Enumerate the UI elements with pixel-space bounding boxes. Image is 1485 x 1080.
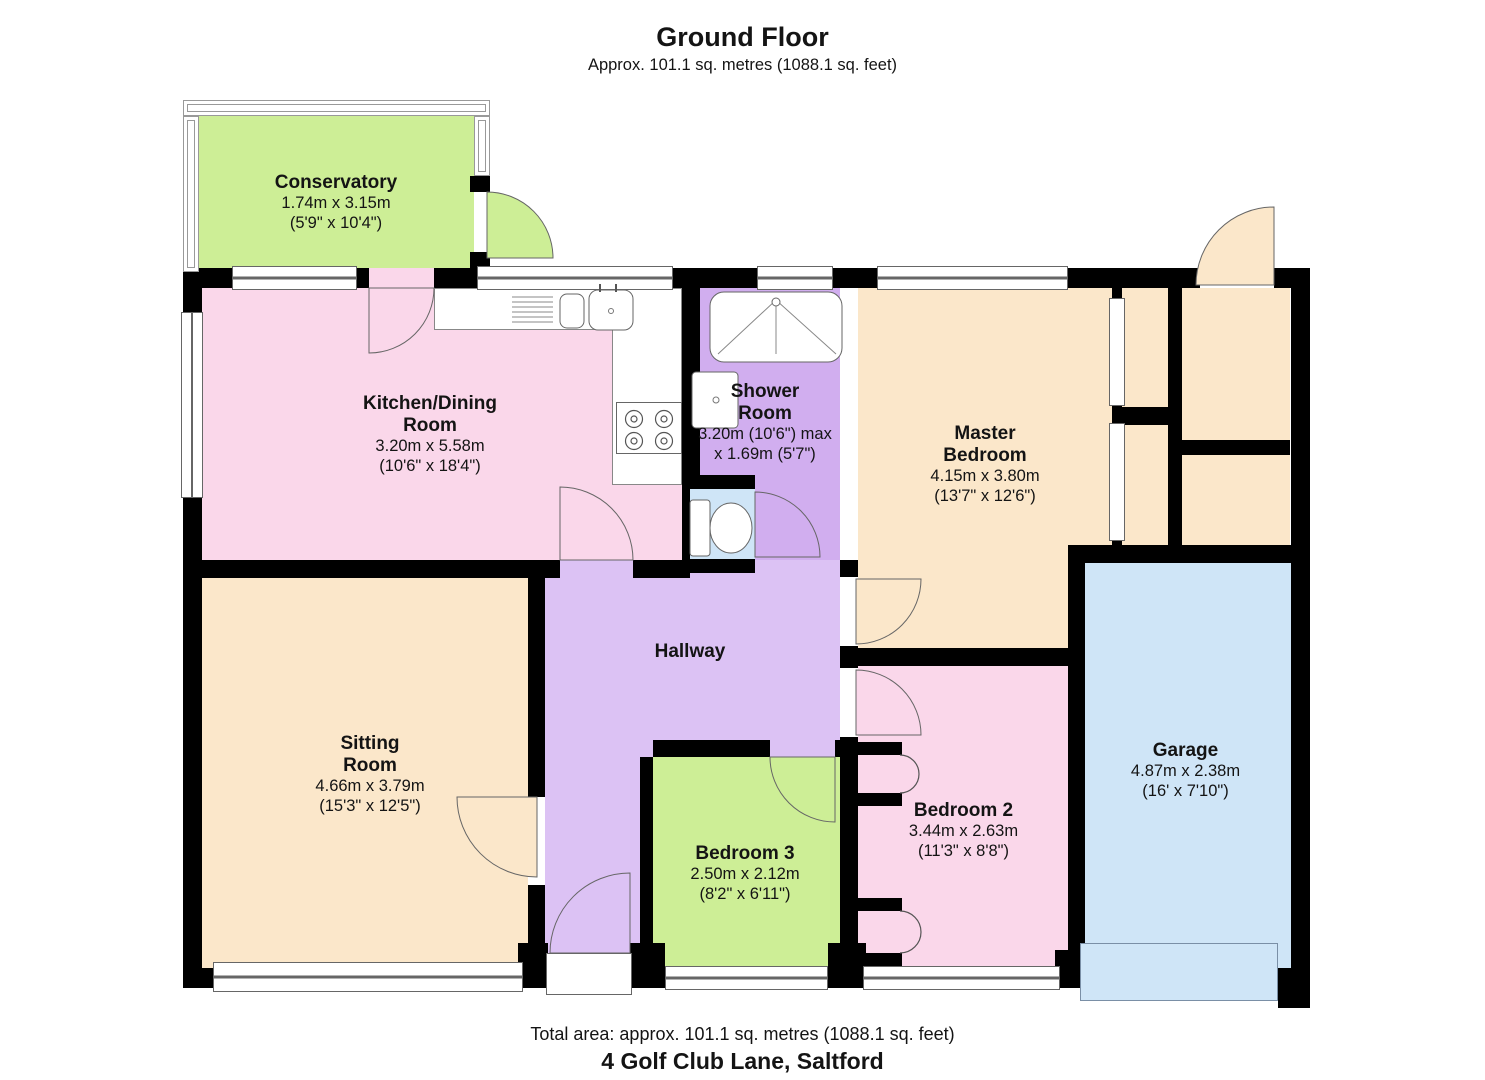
door-swing-sitting-room <box>457 797 537 877</box>
toilet-bowl <box>710 503 752 553</box>
room-label-garage: Garage 4.87m x 2.38m (16' x 7'10") <box>1098 740 1273 802</box>
room-label-conservatory: Conservatory 1.74m x 3.15m (5'9" x 10'4"… <box>236 172 436 234</box>
door-swing-bedroom3 <box>770 757 835 822</box>
door-swing-entry-door <box>1196 207 1274 285</box>
door-swing-conservatory-kitchen <box>369 288 434 353</box>
door-swing-bedroom2 <box>856 670 921 735</box>
room-label-kitchen: Kitchen/Dining Room 3.20m x 5.58m (10'6"… <box>350 393 510 477</box>
floor-plan: Ground Floor Approx. 101.1 sq. metres (1… <box>0 0 1485 1080</box>
address-text: 4 Golf Club Lane, Saltford <box>0 1048 1485 1075</box>
room-label-hallway: Hallway <box>638 641 742 663</box>
page-title: Ground Floor <box>0 22 1485 53</box>
door-swing-shower-room <box>755 492 820 557</box>
toilet-cistern <box>690 500 710 556</box>
shower-head <box>772 298 780 306</box>
bifold-closet-door <box>900 755 919 793</box>
room-label-master: Master Bedroom 4.15m x 3.80m (13'7" x 12… <box>930 423 1040 507</box>
door-and-fixture-overlay <box>0 0 1485 1080</box>
bifold-closet-door <box>900 911 921 953</box>
room-label-bedroom2: Bedroom 2 3.44m x 2.63m (11'3" x 8'8") <box>876 800 1051 862</box>
total-area-text: Total area: approx. 101.1 sq. metres (10… <box>0 1024 1485 1045</box>
room-label-shower: Shower Room 3.20m (10'6") max x 1.69m (5… <box>715 381 815 465</box>
door-swing-conservatory <box>487 192 553 258</box>
door-swing-front-door <box>550 873 630 953</box>
room-label-sitting: Sitting Room 4.66m x 3.79m (15'3" x 12'5… <box>325 733 415 817</box>
page-subtitle: Approx. 101.1 sq. metres (1088.1 sq. fee… <box>0 56 1485 75</box>
door-swing-kitchen <box>560 487 633 560</box>
hob-burners <box>626 411 673 450</box>
sink-bowl-small <box>560 294 584 328</box>
sink-drainer <box>512 297 553 322</box>
sink-bowl <box>589 290 633 330</box>
room-label-bedroom3: Bedroom 3 2.50m x 2.12m (8'2" x 6'11") <box>660 843 830 905</box>
door-swing-master-bedroom <box>856 579 921 644</box>
